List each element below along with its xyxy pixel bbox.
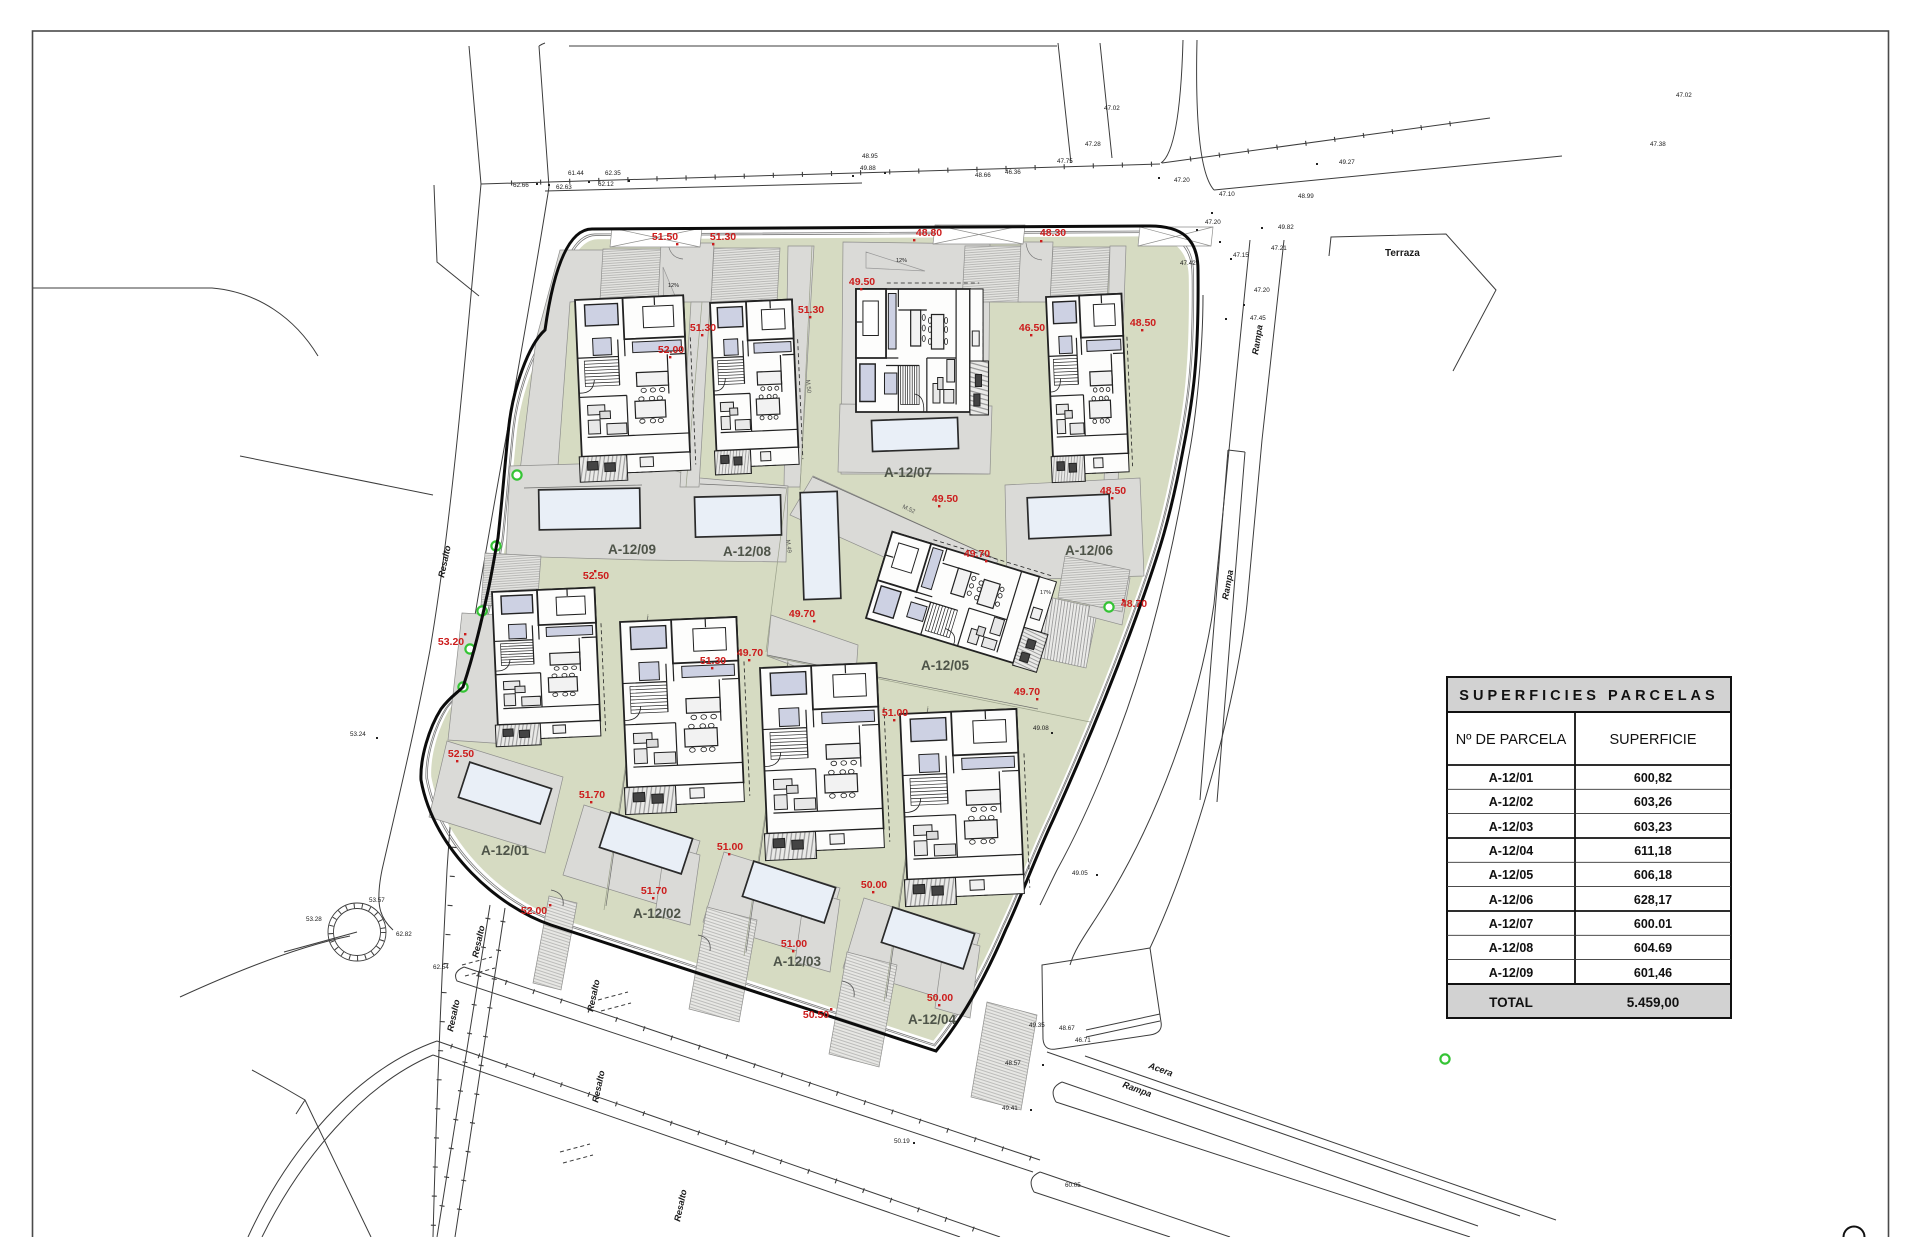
svg-text:12%: 12%	[668, 283, 679, 289]
svg-text:5.459,00: 5.459,00	[1627, 995, 1680, 1010]
svg-text:49.50: 49.50	[849, 276, 875, 288]
svg-text:A-12/02: A-12/02	[633, 906, 681, 921]
svg-text:601,46: 601,46	[1634, 966, 1672, 980]
svg-text:47.38: 47.38	[1650, 141, 1666, 148]
svg-text:Nº DE PARCELA: Nº DE PARCELA	[1456, 732, 1567, 748]
svg-text:51.70: 51.70	[641, 885, 667, 897]
svg-text:47.15: 47.15	[1233, 252, 1249, 259]
svg-text:50.00: 50.00	[927, 992, 953, 1004]
svg-text:A-12/04: A-12/04	[1489, 844, 1534, 858]
svg-text:62.12: 62.12	[598, 181, 614, 188]
svg-text:62.35: 62.35	[605, 170, 621, 177]
svg-text:52.00: 52.00	[658, 344, 684, 356]
svg-text:46.50: 46.50	[1019, 322, 1045, 334]
svg-text:A-12/01: A-12/01	[481, 843, 530, 858]
svg-text:48.57: 48.57	[1005, 1060, 1021, 1067]
svg-text:A-12/09: A-12/09	[608, 542, 656, 557]
svg-text:47.20: 47.20	[1205, 219, 1221, 226]
svg-text:61.44: 61.44	[568, 170, 584, 177]
svg-text:48.99: 48.99	[1298, 193, 1314, 200]
svg-text:A-12/07: A-12/07	[884, 465, 932, 480]
svg-text:46.36: 46.36	[1005, 169, 1021, 176]
svg-text:48.67: 48.67	[1059, 1025, 1075, 1032]
svg-text:SUPERFICIE: SUPERFICIE	[1609, 732, 1696, 748]
svg-text:49.82: 49.82	[1278, 224, 1294, 231]
svg-text:606,18: 606,18	[1634, 868, 1672, 882]
svg-text:A-12/06: A-12/06	[1489, 893, 1534, 907]
svg-text:53.24: 53.24	[350, 731, 366, 738]
svg-text:49.70: 49.70	[737, 647, 763, 659]
svg-text:48.50: 48.50	[1130, 317, 1156, 329]
svg-text:60.05: 60.05	[1065, 1182, 1081, 1189]
svg-text:50.00: 50.00	[861, 879, 887, 891]
svg-text:47.02: 47.02	[1104, 105, 1120, 112]
svg-text:49.70: 49.70	[789, 608, 815, 620]
svg-text:600,82: 600,82	[1634, 771, 1672, 785]
svg-text:604.69: 604.69	[1634, 941, 1672, 955]
svg-text:48.95: 48.95	[862, 153, 878, 160]
svg-text:A-12/08: A-12/08	[1489, 941, 1534, 955]
svg-text:49.41: 49.41	[1002, 1105, 1018, 1112]
svg-text:52.50: 52.50	[448, 748, 474, 760]
svg-text:47.75: 47.75	[1057, 158, 1073, 165]
svg-text:628,17: 628,17	[1634, 893, 1672, 907]
svg-text:49.35: 49.35	[1029, 1022, 1045, 1029]
svg-text:47.10: 47.10	[1219, 191, 1235, 198]
svg-text:48.30: 48.30	[1040, 227, 1066, 239]
svg-text:49.05: 49.05	[1072, 870, 1088, 877]
svg-text:A-12/07: A-12/07	[1489, 917, 1534, 931]
svg-text:47.21: 47.21	[1271, 245, 1287, 252]
svg-text:51.30: 51.30	[690, 322, 716, 334]
svg-text:53.28: 53.28	[306, 916, 322, 923]
svg-text:62.63: 62.63	[556, 184, 572, 191]
svg-text:62.54: 62.54	[433, 964, 449, 971]
svg-text:48.50: 48.50	[1100, 485, 1126, 497]
svg-text:TOTAL: TOTAL	[1489, 995, 1533, 1010]
svg-text:50.50: 50.50	[803, 1009, 829, 1021]
svg-text:49.27: 49.27	[1339, 159, 1355, 166]
svg-text:51.30: 51.30	[798, 304, 824, 316]
svg-text:48.80: 48.80	[916, 227, 942, 239]
svg-text:49.88: 49.88	[860, 165, 876, 172]
svg-text:47.20: 47.20	[1254, 287, 1270, 294]
svg-text:47.02: 47.02	[1676, 92, 1692, 99]
svg-text:SUPERFICIES PARCELAS: SUPERFICIES PARCELAS	[1459, 688, 1718, 704]
svg-text:49.08: 49.08	[1033, 725, 1049, 732]
svg-text:51.30: 51.30	[700, 655, 726, 667]
svg-text:49.50: 49.50	[932, 493, 958, 505]
svg-text:52.00: 52.00	[521, 905, 547, 917]
svg-text:50.19: 50.19	[894, 1138, 910, 1145]
svg-text:46.71: 46.71	[1075, 1037, 1091, 1044]
svg-text:51.70: 51.70	[579, 789, 605, 801]
svg-text:48.70: 48.70	[1121, 598, 1147, 610]
svg-text:51.00: 51.00	[717, 841, 743, 853]
svg-text:603,26: 603,26	[1634, 795, 1672, 809]
svg-text:600.01: 600.01	[1634, 917, 1672, 931]
svg-text:51.00: 51.00	[781, 938, 807, 950]
svg-text:A-12/06: A-12/06	[1065, 543, 1114, 558]
svg-text:49.70: 49.70	[1014, 686, 1040, 698]
svg-text:A-12/03: A-12/03	[773, 954, 822, 969]
svg-text:62.82: 62.82	[396, 931, 412, 938]
svg-text:62.66: 62.66	[513, 182, 529, 189]
svg-text:51.50: 51.50	[652, 231, 678, 243]
svg-text:A-12/03: A-12/03	[1489, 820, 1534, 834]
svg-text:A-12/08: A-12/08	[723, 544, 772, 559]
svg-text:A-12/09: A-12/09	[1489, 966, 1534, 980]
svg-text:49.70: 49.70	[964, 548, 990, 560]
svg-text:603,23: 603,23	[1634, 820, 1672, 834]
svg-text:51.00: 51.00	[882, 707, 908, 719]
svg-text:Terraza: Terraza	[1385, 248, 1420, 259]
svg-text:53.57: 53.57	[369, 897, 385, 904]
svg-text:48.66: 48.66	[975, 172, 991, 179]
svg-text:A-12/04: A-12/04	[908, 1012, 957, 1027]
svg-text:12%: 12%	[896, 258, 907, 264]
svg-text:47.42: 47.42	[1180, 260, 1196, 267]
svg-text:47.28: 47.28	[1085, 141, 1101, 148]
svg-text:53.20: 53.20	[438, 636, 464, 648]
svg-text:17%: 17%	[1040, 590, 1051, 596]
svg-text:47.45: 47.45	[1250, 315, 1266, 322]
svg-text:611,18: 611,18	[1634, 844, 1672, 858]
svg-text:A-12/05: A-12/05	[921, 658, 970, 673]
svg-text:A-12/01: A-12/01	[1489, 771, 1534, 785]
svg-text:A-12/05: A-12/05	[1489, 868, 1534, 882]
svg-text:51.30: 51.30	[710, 231, 736, 243]
svg-text:47.20: 47.20	[1174, 177, 1190, 184]
svg-text:A-12/02: A-12/02	[1489, 795, 1534, 809]
